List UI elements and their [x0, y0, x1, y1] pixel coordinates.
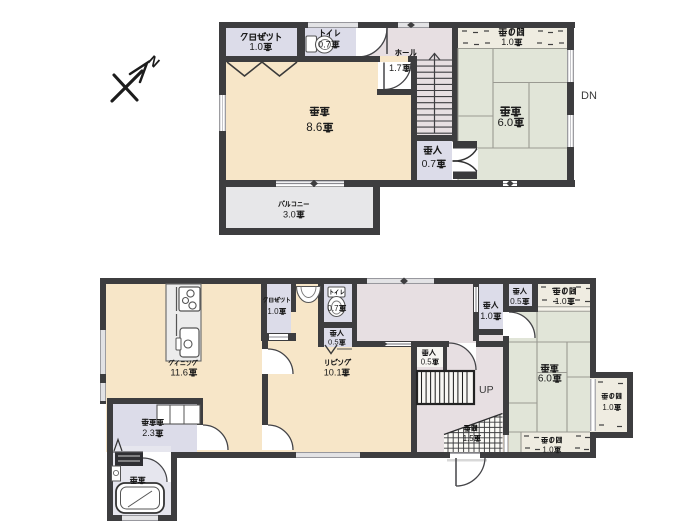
svg-text:1.0: 1.0	[555, 296, 567, 306]
svg-text:1.7: 1.7	[389, 63, 402, 73]
svg-text:11.6: 11.6	[170, 366, 188, 377]
svg-text:1.0: 1.0	[480, 311, 493, 321]
svg-text:0.5: 0.5	[328, 338, 339, 347]
svg-text:1.5: 1.5	[463, 434, 475, 443]
svg-text:1.0: 1.0	[267, 307, 279, 316]
svg-text:6.0: 6.0	[538, 374, 552, 385]
svg-text:1.0: 1.0	[501, 37, 514, 47]
svg-text:10.1: 10.1	[324, 367, 342, 377]
svg-text:2.3: 2.3	[142, 428, 155, 438]
svg-text:0.5: 0.5	[421, 357, 433, 366]
svg-text:1.0: 1.0	[542, 445, 554, 454]
svg-text:0.7: 0.7	[422, 159, 437, 170]
svg-text:3.0: 3.0	[283, 209, 296, 219]
svg-text:8.6: 8.6	[306, 121, 322, 134]
svg-text:1.0: 1.0	[249, 42, 263, 53]
svg-text:0.7: 0.7	[318, 39, 331, 49]
svg-text:0.5: 0.5	[510, 296, 522, 306]
svg-text:1.0: 1.0	[602, 403, 614, 412]
svg-text:6.0: 6.0	[498, 117, 514, 129]
svg-text:UP: UP	[479, 384, 494, 396]
svg-text:DN: DN	[581, 90, 597, 102]
svg-text:0.7: 0.7	[327, 304, 339, 313]
